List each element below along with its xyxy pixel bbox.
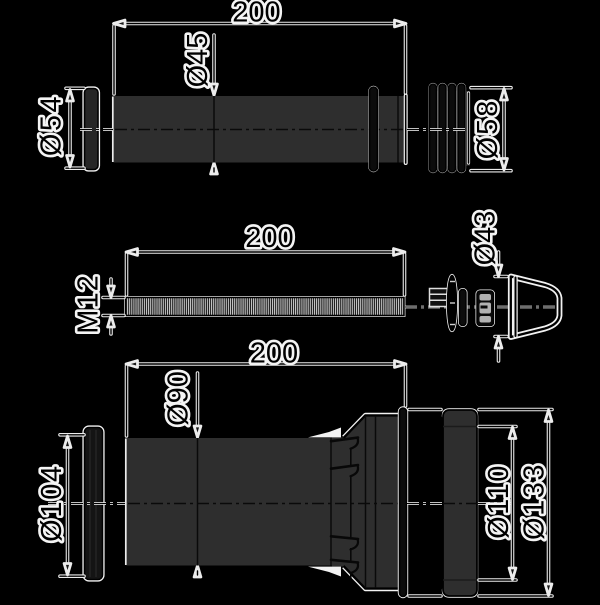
svg-text:200: 200 <box>250 338 298 370</box>
svg-text:Ø110: Ø110 <box>483 464 515 539</box>
svg-text:200: 200 <box>245 222 293 254</box>
svg-text:M12: M12 <box>72 274 104 333</box>
svg-text:Ø45: Ø45 <box>182 33 214 88</box>
svg-text:Ø90: Ø90 <box>162 371 194 426</box>
svg-text:Ø43: Ø43 <box>469 211 501 266</box>
svg-text:200: 200 <box>232 0 280 29</box>
svg-text:Ø133: Ø133 <box>518 463 550 540</box>
svg-text:Ø54: Ø54 <box>35 94 67 156</box>
svg-text:Ø104: Ø104 <box>36 464 68 542</box>
svg-text:Ø58: Ø58 <box>472 99 504 160</box>
